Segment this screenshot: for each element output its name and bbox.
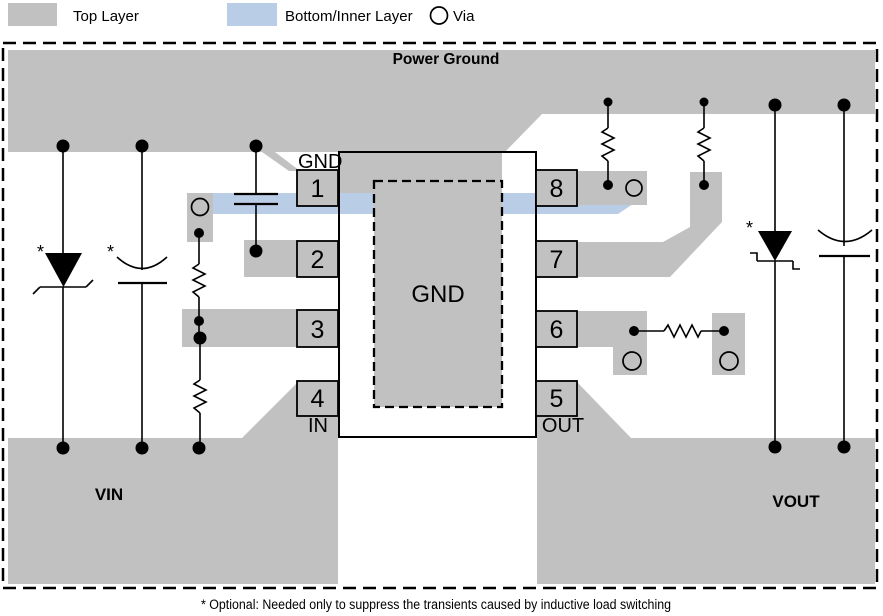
pin-3-number: 3 bbox=[311, 316, 325, 344]
junction-dot bbox=[604, 98, 613, 107]
gnd-pin-label: GND bbox=[298, 151, 342, 173]
junction-dot bbox=[57, 442, 70, 455]
junction-dot bbox=[250, 140, 263, 153]
legend-via-label: Via bbox=[453, 8, 475, 25]
legend-top-layer-label: Top Layer bbox=[73, 8, 139, 25]
junction-dot bbox=[194, 332, 207, 345]
junction-dot bbox=[629, 326, 639, 336]
junction-dot bbox=[603, 180, 613, 190]
junction-dot bbox=[136, 140, 149, 153]
junction-dot bbox=[700, 98, 709, 107]
optional-marker: * bbox=[37, 242, 44, 262]
vin-label: VIN bbox=[95, 485, 123, 504]
junction-dot bbox=[193, 442, 206, 455]
out-pin-label: OUT bbox=[542, 415, 584, 437]
top-layer-swatch bbox=[8, 3, 57, 26]
optional-marker: * bbox=[746, 218, 753, 238]
pin2-cap-pad bbox=[244, 240, 298, 277]
junction-dot bbox=[57, 140, 70, 153]
junction-dot bbox=[719, 326, 729, 336]
pin6-via-pad bbox=[712, 313, 745, 375]
legend: Top Layer Bottom/Inner Layer Via bbox=[8, 3, 475, 26]
pin-2-number: 2 bbox=[311, 246, 325, 274]
optional-marker: * bbox=[107, 242, 114, 262]
via-icon bbox=[431, 7, 448, 24]
power-ground-label: Power Ground bbox=[393, 51, 500, 68]
footnote: * Optional: Needed only to suppress the … bbox=[201, 597, 671, 612]
thermal-pad-label: GND bbox=[411, 281, 464, 308]
pin-5-number: 5 bbox=[550, 385, 564, 413]
bottom-inner-layer-swatch bbox=[227, 3, 277, 26]
legend-bottom-inner-layer-label: Bottom/Inner Layer bbox=[285, 8, 413, 25]
pin-8-number: 8 bbox=[550, 175, 564, 203]
junction-dot bbox=[194, 316, 204, 326]
junction-dot bbox=[136, 442, 149, 455]
pin-4-number: 4 bbox=[311, 385, 325, 413]
junction-dot bbox=[769, 99, 782, 112]
junction-dot bbox=[838, 99, 851, 112]
pcb-layout-diagram: Top Layer Bottom/Inner Layer Via bbox=[0, 0, 883, 616]
junction-dot bbox=[838, 441, 851, 454]
vout-label: VOUT bbox=[772, 492, 820, 511]
junction-dot bbox=[769, 441, 782, 454]
junction-dot bbox=[194, 228, 204, 238]
pin-6-number: 6 bbox=[550, 316, 564, 344]
in-pin-label: IN bbox=[308, 415, 328, 437]
pin-7-number: 7 bbox=[550, 246, 564, 274]
pin-1-number: 1 bbox=[311, 175, 325, 203]
junction-dot bbox=[250, 245, 263, 258]
junction-dot bbox=[699, 180, 709, 190]
